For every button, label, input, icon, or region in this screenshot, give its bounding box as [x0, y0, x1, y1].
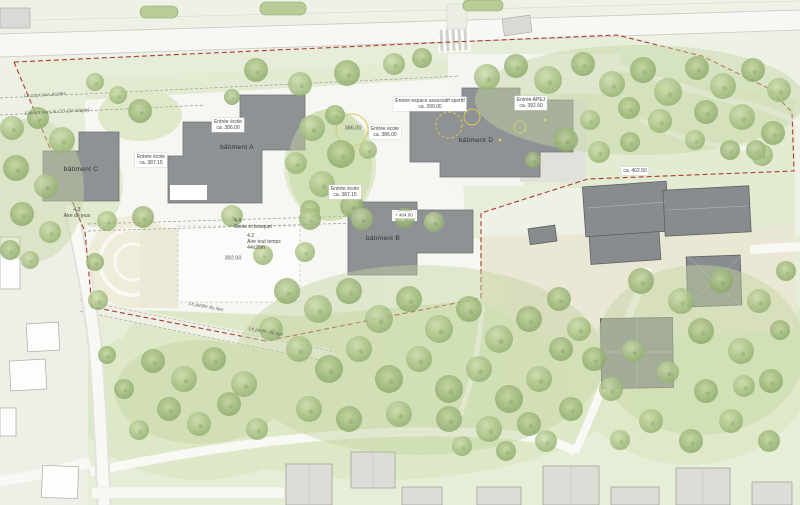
site-plan-drawing [0, 0, 800, 505]
crosswalk [437, 27, 470, 53]
site-plan: bâtiment A bâtiment B bâtiment C bâtimen… [0, 0, 800, 505]
